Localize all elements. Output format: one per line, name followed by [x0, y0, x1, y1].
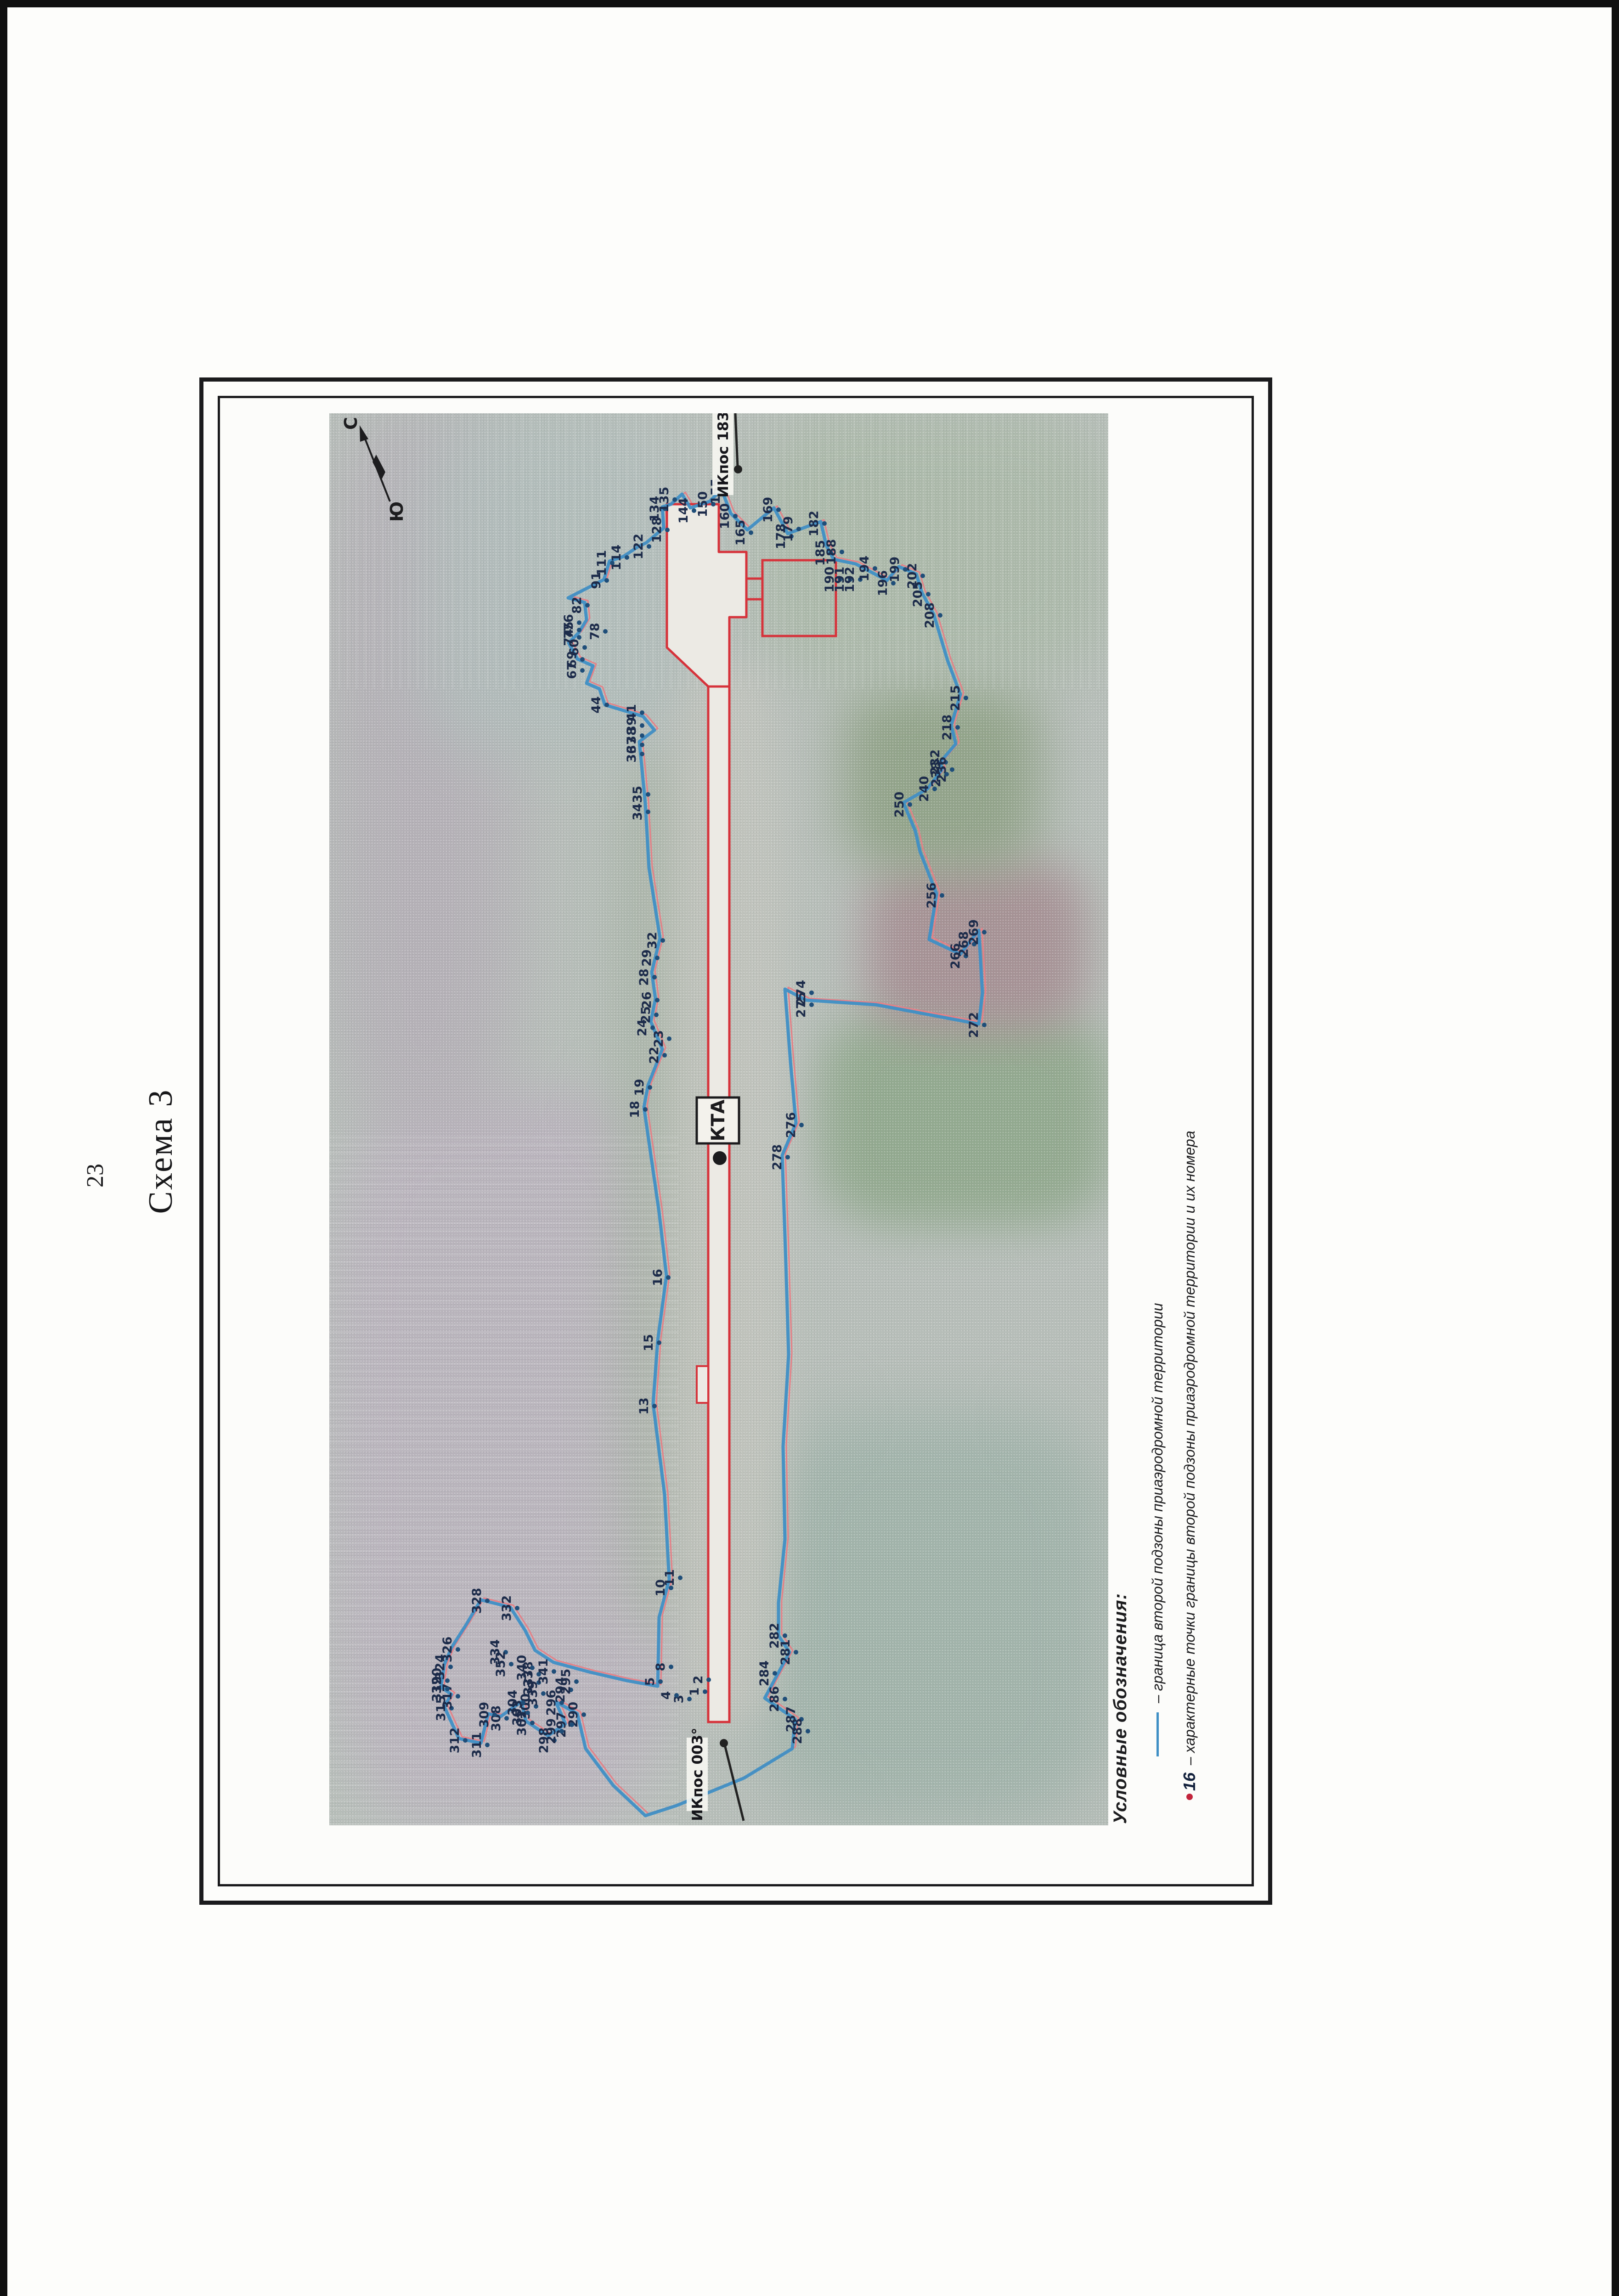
legend: Условные обозначения: – граница второй п… [1110, 1020, 1199, 1824]
boundary-point-label: 278 [770, 1144, 784, 1170]
boundary-point-icon: 16 [1180, 1773, 1199, 1800]
boundary-point-dot [666, 1275, 671, 1280]
boundary-point-dot [577, 635, 581, 640]
boundary-point-label: 3 [672, 1695, 686, 1704]
boundary-point-dot [559, 1700, 564, 1705]
kta-dot [713, 1151, 727, 1165]
heading-003-dot [720, 1739, 728, 1747]
heading-183-dot [734, 465, 742, 473]
boundary-point-label: 288 [790, 1718, 805, 1744]
boundary-point-dot [932, 787, 937, 791]
page-root: 23 Схема 3 12345810111315161819222324252… [0, 0, 1619, 2296]
boundary-point-dot [964, 696, 968, 700]
boundary-point-dot [955, 725, 960, 730]
boundary-point-dot [640, 710, 644, 715]
boundary-point-label: 15 [642, 1334, 656, 1351]
boundary-point-dot [776, 507, 781, 512]
boundary-point-label: 256 [925, 883, 939, 908]
boundary-point-label: 34 [631, 803, 645, 821]
boundary-point-label: 160 [718, 503, 732, 529]
boundary-point-dot [485, 1598, 490, 1603]
page-number: 23 [82, 1164, 109, 1187]
boundary-point-label: 194 [857, 556, 872, 581]
landscape-rotated-layer: 23 Схема 3 12345810111315161819222324252… [0, 0, 1619, 2296]
boundary-point-dot [783, 1633, 787, 1638]
boundary-point-label: 272 [967, 1012, 981, 1038]
legend-item-boundary-line: – граница второй подзоны приаэродромной … [1149, 1020, 1166, 1756]
boundary-point-dot [515, 1606, 519, 1610]
boundary-point-dot [657, 1340, 661, 1345]
boundary-point-dot [646, 792, 650, 797]
boundary-point-dot [703, 1689, 707, 1694]
boundary-point-label: 165 [733, 520, 748, 546]
boundary-point-label: 340 [515, 1655, 529, 1681]
boundary-point-dot [662, 1053, 667, 1058]
boundary-point-dot [785, 1155, 790, 1159]
boundary-point-dot [749, 530, 753, 535]
boundary-point-dot [938, 613, 942, 618]
boundary-point-dot [799, 1123, 804, 1127]
compass-north-label: С [341, 417, 361, 430]
boundary-point-label: 16 [651, 1269, 665, 1286]
boundary-point-label: 11 [663, 1569, 677, 1587]
map-svg: 1234581011131516181922232425262829323435… [329, 413, 1108, 1825]
boundary-point-label: 19 [632, 1079, 647, 1096]
boundary-point-label: 18 [628, 1101, 642, 1118]
boundary-point-dot [822, 521, 827, 526]
boundary-point-dot [456, 1694, 460, 1699]
boundary-point-label: 295 [559, 1669, 573, 1694]
boundary-point-dot [654, 1013, 659, 1017]
boundary-point-dot [530, 1666, 535, 1670]
boundary-point-label: 28 [637, 968, 651, 986]
boundary-point-dot [580, 657, 585, 662]
boundary-point-label: 309 [477, 1702, 491, 1728]
boundary-point-dot [650, 1025, 655, 1030]
boundary-point-dot [652, 1404, 657, 1408]
boundary-point-label: 32 [645, 932, 660, 949]
boundary-point-label: 341 [536, 1659, 551, 1684]
boundary-point-dot [669, 1665, 673, 1669]
boundary-point-dot [655, 998, 660, 1002]
boundary-point-dot [809, 1002, 814, 1007]
boundary-point-dot [873, 566, 877, 571]
boundary-point-label: 240 [917, 776, 931, 802]
inner-frame: 1234581011131516181922232425262829323435… [218, 396, 1254, 1886]
boundary-point-label: 76 [562, 614, 576, 631]
boundary-point-dot [485, 1743, 490, 1747]
boundary-point-label: 4 [659, 1691, 673, 1700]
boundary-point-label: 179 [781, 516, 795, 542]
boundary-point-dot [463, 1738, 468, 1743]
boundary-point-label: 296 [544, 1690, 558, 1716]
boundary-point-label: 29 [640, 949, 654, 967]
boundary-point-dot [604, 703, 609, 707]
boundary-point-dot [794, 1650, 798, 1654]
boundary-point-dot [944, 772, 949, 777]
boundary-point-dot [773, 1671, 777, 1676]
boundary-point-dot [840, 550, 844, 554]
kta-label: КТА [708, 1099, 729, 1141]
boundary-point-label: 150 [696, 491, 710, 517]
boundary-point-dot [445, 1687, 450, 1691]
boundary-point-dot [640, 743, 644, 747]
heading-003-line [724, 1743, 744, 1821]
boundary-point-label: 311 [470, 1732, 484, 1758]
heading-183-line [735, 413, 738, 467]
boundary-line-icon [1156, 1712, 1159, 1756]
boundary-point-dot [640, 733, 644, 738]
satellite-map: 1234581011131516181922232425262829323435… [329, 413, 1108, 1825]
boundary-point-label: 312 [448, 1728, 462, 1753]
boundary-point-dot [509, 1662, 513, 1666]
boundary-point-dot [570, 1722, 574, 1727]
boundary-point-label: 304 [506, 1690, 520, 1716]
heading-003-label: ИКпос 003° [689, 1728, 706, 1821]
boundary-point-dot [809, 990, 814, 995]
boundary-point-label: 8 [654, 1663, 668, 1671]
boundary-point-label: 326 [440, 1637, 455, 1662]
boundary-point-dot [665, 528, 670, 532]
boundary-point-dot [908, 802, 912, 807]
boundary-point-dot [604, 578, 609, 583]
boundary-point-label: 218 [940, 715, 954, 740]
boundary-point-dot [585, 603, 590, 608]
boundary-point-dot [926, 592, 931, 597]
boundary-point-dot [687, 1697, 692, 1701]
boundary-point-label: 199 [888, 557, 902, 582]
runway-notch [697, 1366, 708, 1403]
boundary-point-label: 284 [757, 1660, 772, 1686]
boundary-point-label: 2 [691, 1676, 705, 1684]
boundary-point-dot [504, 1716, 509, 1721]
boundary-point-dot [603, 629, 608, 634]
boundary-point-dot [577, 628, 581, 632]
boundary-point-dot [706, 1677, 711, 1682]
boundary-point-label: 26 [640, 991, 654, 1009]
boundary-point-dot [667, 1036, 671, 1041]
boundary-point-dot [582, 645, 587, 650]
boundary-point-dot [530, 1721, 535, 1725]
boundary-point-label: 299 [544, 1718, 558, 1744]
boundary-point-dot [574, 1679, 579, 1684]
scheme-title: Схема 3 [141, 1088, 181, 1214]
boundary-point-dot [678, 1576, 683, 1580]
heading-183-label: ИКпос 183° [715, 413, 732, 498]
boundary-point-label: 275 [794, 992, 808, 1018]
boundary-point-label: 111 [595, 550, 609, 576]
boundary-point-dot [640, 752, 644, 756]
boundary-point-dot [541, 1691, 546, 1696]
boundary-point-dot [580, 668, 585, 673]
runway-strip [708, 687, 729, 1722]
boundary-point-dot [456, 1647, 460, 1652]
boundary-point-dot [950, 767, 954, 772]
boundary-point-label: 13 [637, 1397, 651, 1415]
boundary-point-label: 332 [500, 1595, 514, 1621]
boundary-point-dot [733, 514, 738, 518]
legend-item-label: – граница второй подзоны приаэродромной … [1149, 1303, 1166, 1703]
boundary-point-label: 352 [494, 1651, 508, 1677]
boundary-point-label: 122 [632, 534, 646, 559]
boundary-point-label: 250 [892, 792, 907, 817]
boundary-point-dot [647, 544, 651, 549]
boundary-point-dot [581, 1712, 586, 1717]
boundary-point-dot [521, 1700, 525, 1705]
boundary-point-dot [559, 1729, 564, 1733]
boundary-point-label: 269 [967, 919, 981, 945]
boundary-point-label: 144 [677, 498, 691, 523]
boundary-point-dot [625, 555, 629, 560]
legend-item-boundary-points: 16 – характерные точки границы второй по… [1180, 1020, 1199, 1800]
boundary-point-label: 328 [470, 1588, 484, 1614]
boundary-point-dot [940, 893, 944, 898]
boundary-point-dot [552, 1669, 556, 1674]
boundary-point-dot [643, 1107, 648, 1112]
boundary-point-dot [982, 1023, 987, 1027]
boundary-point-dot [796, 527, 801, 531]
boundary-point-dot [982, 930, 987, 934]
boundary-point-label: 35 [631, 786, 645, 803]
boundary-point-dot [806, 1729, 810, 1733]
boundary-point-label: 182 [807, 511, 821, 536]
boundary-point-label: 22 [647, 1047, 661, 1064]
boundary-point-dot [448, 1665, 453, 1669]
boundary-point-dot [674, 1693, 679, 1698]
boundary-point-dot [648, 1085, 652, 1090]
legend-item-label: – характерные точки границы второй подзо… [1181, 1131, 1198, 1765]
boundary-point-label: 282 [767, 1623, 782, 1649]
boundary-point-label: 276 [784, 1112, 798, 1138]
boundary-point-dot [783, 1697, 787, 1701]
boundary-point-dot [652, 975, 657, 979]
boundary-point-dot [655, 956, 660, 960]
legend-point-number: 16 [1180, 1773, 1199, 1791]
boundary-point-label: 215 [948, 685, 963, 711]
boundary-point-label: 44 [589, 696, 604, 714]
red-dot-icon [1186, 1794, 1193, 1800]
boundary-point-dot [920, 574, 925, 578]
boundary-point-dot [492, 1712, 497, 1717]
boundary-point-label: 188 [824, 539, 839, 565]
boundary-point-dot [640, 723, 644, 728]
compass-south-label: Ю [387, 501, 407, 522]
boundary-point-dot [660, 938, 665, 943]
boundary-point-dot [646, 810, 650, 814]
boundary-point-label: 114 [609, 545, 624, 570]
boundary-point-label: 192 [843, 567, 857, 592]
boundary-point-label: 78 [588, 623, 602, 640]
boundary-point-label: 5 [643, 1677, 657, 1686]
boundary-point-label: 41 [625, 704, 639, 721]
boundary-point-label: 135 [657, 487, 671, 512]
boundary-point-label: 1 [688, 1688, 702, 1696]
boundary-point-label: 286 [767, 1686, 782, 1712]
boundary-point-label: 208 [923, 602, 937, 628]
boundary-point-dot [525, 1711, 530, 1715]
boundary-point-label: 169 [761, 497, 775, 523]
boundary-point-dot [577, 620, 581, 625]
boundary-point-label: 82 [570, 597, 584, 614]
legend-heading: Условные обозначения: [1110, 1020, 1131, 1824]
boundary-point-dot [658, 1679, 663, 1684]
boundary-point-label: 23 [652, 1030, 666, 1047]
